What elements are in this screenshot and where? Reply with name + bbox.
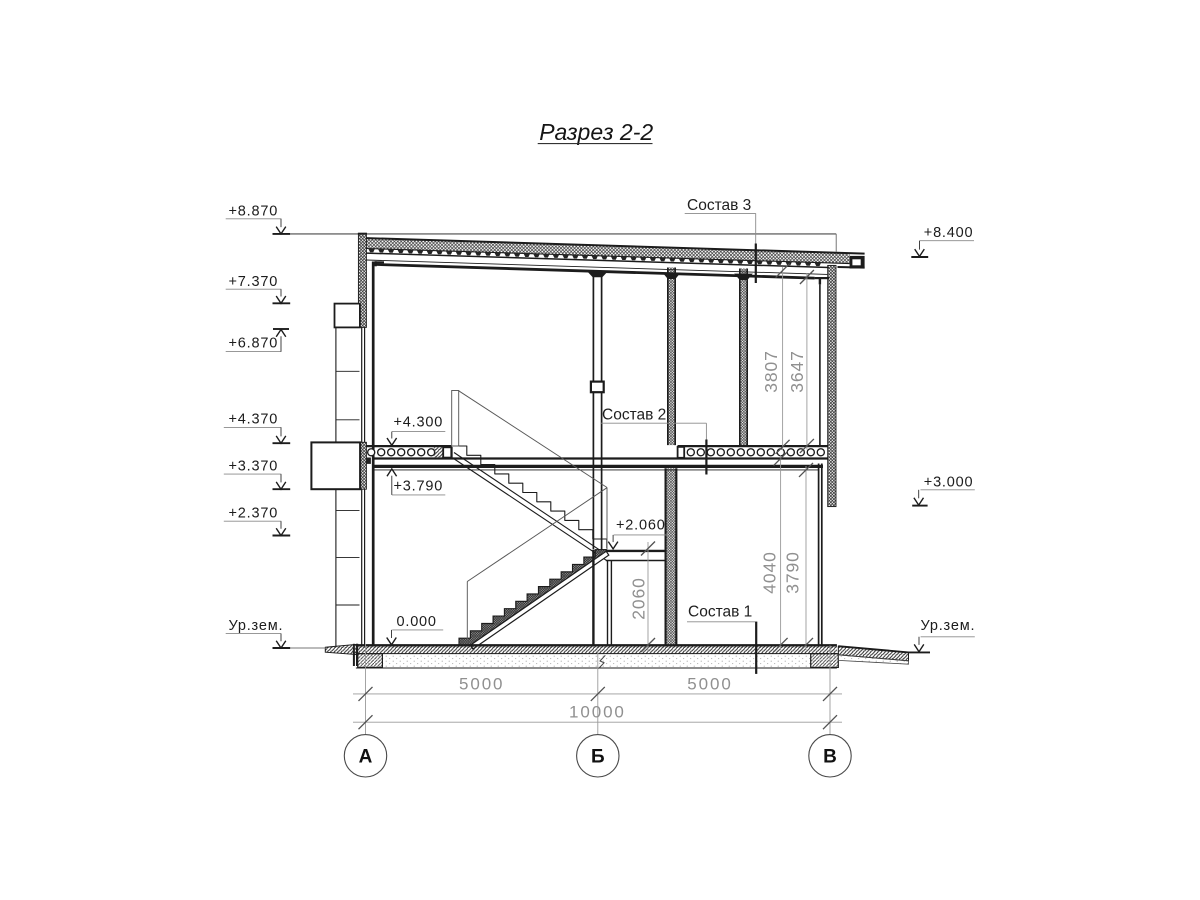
svg-text:+7.370: +7.370 (229, 274, 279, 290)
svg-text:Ур.зем.: Ур.зем. (921, 618, 976, 634)
svg-text:Б: Б (591, 746, 605, 767)
svg-text:3647: 3647 (787, 350, 807, 393)
svg-text:5000: 5000 (459, 675, 504, 694)
svg-text:+3.790: +3.790 (394, 478, 444, 494)
svg-text:5000: 5000 (687, 675, 732, 694)
svg-text:+2.060: +2.060 (616, 518, 666, 534)
svg-text:Разрез 2-2: Разрез 2-2 (539, 119, 653, 145)
svg-text:Ур.зем.: Ур.зем. (229, 618, 284, 634)
svg-text:+8.870: +8.870 (229, 203, 279, 219)
svg-text:0.000: 0.000 (397, 614, 437, 630)
svg-text:3790: 3790 (783, 551, 803, 594)
svg-text:В: В (823, 746, 837, 767)
svg-text:2060: 2060 (629, 577, 649, 620)
svg-text:+8.400: +8.400 (924, 225, 974, 241)
svg-text:+4.370: +4.370 (229, 411, 279, 427)
svg-text:А: А (359, 746, 373, 767)
svg-text:+4.300: +4.300 (394, 415, 444, 431)
svg-text:+2.370: +2.370 (229, 506, 279, 522)
svg-text:3807: 3807 (761, 350, 781, 393)
svg-text:+3.370: +3.370 (229, 458, 279, 474)
svg-text:+3.000: +3.000 (924, 474, 974, 490)
svg-text:10000: 10000 (569, 703, 626, 722)
svg-text:4040: 4040 (759, 551, 779, 594)
svg-text:Состав 2: Состав 2 (602, 407, 666, 424)
svg-text:+6.870: +6.870 (229, 336, 279, 352)
svg-text:Состав 3: Состав 3 (687, 197, 751, 214)
svg-text:Состав 1: Состав 1 (688, 604, 752, 621)
